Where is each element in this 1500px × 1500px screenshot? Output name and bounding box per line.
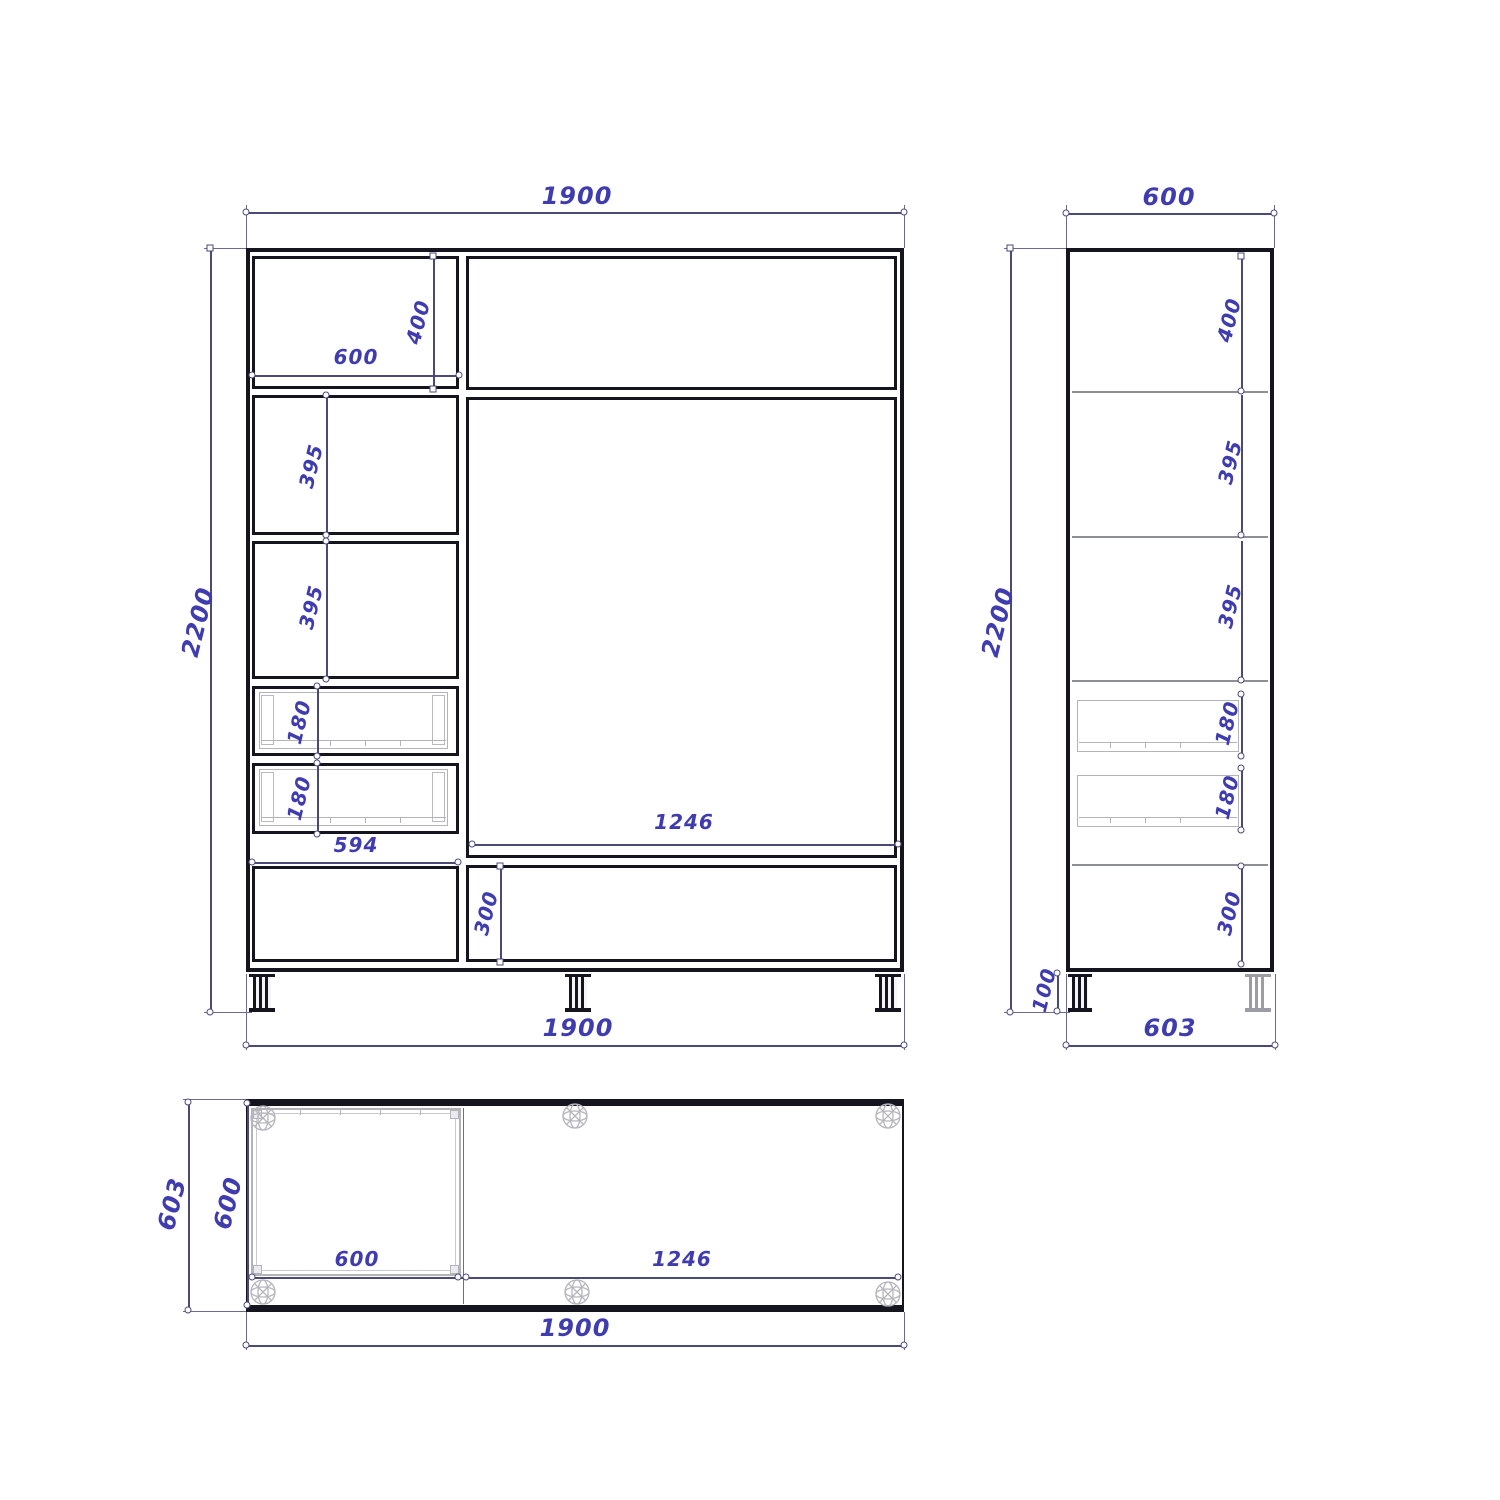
blueprint-canvas: 1900 2200 1900 600 400 395 395 180 180 5… [0,0,1500,1500]
leg-circle-icon [561,1102,589,1130]
dim-line [247,1103,249,1307]
dim-node [1238,388,1245,395]
dim-front-width-top-label: 1900 [542,182,613,210]
module-tick [300,1110,301,1115]
drawer-rail-tick [330,741,331,746]
dim-plan-right-width-label: 1246 [652,1247,712,1271]
module-tick [380,1110,381,1115]
dim-node [1007,1009,1014,1016]
dim-node [901,1342,908,1349]
dim-node [497,959,504,966]
dim-node [314,760,321,767]
dim-node [249,859,256,866]
dim-line [433,256,435,389]
extension-line [904,974,905,1050]
drawer-rail-tick [1145,818,1146,823]
dim-line [188,1102,190,1310]
dim-line [252,1277,898,1279]
drawer-rail-tick [365,818,366,823]
dim-front-top-cell-width-label: 600 [334,345,379,369]
dim-node [1272,1042,1279,1049]
front-leg-right [877,974,899,1012]
dim-line [246,1045,904,1047]
module-corner-detail [253,1265,262,1274]
extension-line [183,1099,246,1100]
dim-node [1238,765,1245,772]
dim-line [246,1345,904,1347]
front-leg-left [251,974,273,1012]
leg-circle-icon [874,1280,902,1308]
dim-node [314,831,321,838]
dim-node [244,1302,251,1309]
dim-node [1238,677,1245,684]
dim-line [1241,866,1243,964]
dim-side-height-label: 2200 [976,584,1020,659]
dim-node [1271,210,1278,217]
extension-line [183,1311,246,1312]
module-corner-detail [450,1110,459,1119]
dim-front-width-bottom-label: 1900 [543,1014,614,1042]
dim-node [243,209,250,216]
dim-node [1238,961,1245,968]
dim-front-height-label: 2200 [176,584,220,659]
dim-node [1063,210,1070,217]
extension-line [1275,974,1276,1050]
drawer-rail-tick [400,818,401,823]
dim-node [243,1042,250,1049]
drawer-rail-tick [330,818,331,823]
dim-front-drawer-width-label: 594 [334,833,379,857]
dim-front-right-width-label: 1246 [654,810,714,834]
dim-node [463,1274,470,1281]
dim-line [252,375,459,377]
dim-node [249,1274,256,1281]
dim-node [895,841,902,848]
side-leg-back [1247,974,1269,1012]
dim-line [1066,213,1274,215]
drawer-slide-detail [261,695,274,745]
front-shelf-cell-2 [252,541,459,679]
leg-circle-icon [249,1278,277,1306]
front-top-right-band [466,256,897,390]
extension-line [1066,974,1067,1050]
dim-node [314,683,321,690]
dim-line [500,866,502,962]
dim-node [430,253,437,260]
dim-node [455,1274,462,1281]
dim-node [207,1009,214,1016]
extension-line [246,974,247,1050]
drawer-rail-tick [1110,818,1111,823]
drawer-rail-tick [365,741,366,746]
dim-node [185,1099,192,1106]
dim-side-width-top-label: 600 [1142,183,1195,211]
leg-circle-icon [249,1104,277,1132]
dim-node [314,753,321,760]
front-shelf-cell-1 [252,395,459,535]
side-leg-front [1070,974,1090,1012]
dim-node [430,386,437,393]
dim-side-depth-bottom-label: 603 [1143,1014,1196,1042]
dim-node [1238,532,1245,539]
front-door-area [466,397,897,858]
dim-node [1238,863,1245,870]
dim-line [326,395,328,535]
dim-node [469,841,476,848]
dim-line [1241,256,1243,391]
dim-line [326,541,328,679]
module-tick [340,1110,341,1115]
dim-node [1238,253,1245,260]
front-bottom-drawer [466,865,897,962]
drawer-slide-detail [261,772,274,822]
dim-node [207,245,214,252]
front-leg-middle [567,974,589,1012]
dim-node [243,1342,250,1349]
dim-node [1238,753,1245,760]
dim-node [895,1274,902,1281]
dim-plan-depth-inner-label: 600 [208,1174,248,1232]
dim-node [244,1100,251,1107]
dim-node [497,863,504,870]
drawer-slide-detail [432,772,445,822]
dim-node [1054,1008,1061,1015]
dim-node [323,538,330,545]
dim-line [252,862,458,864]
leg-circle-icon [563,1278,591,1306]
dim-node [455,859,462,866]
module-tick [420,1110,421,1115]
dim-node [1238,827,1245,834]
dim-plan-width-bottom-label: 1900 [540,1314,611,1342]
drawer-rail-detail [1079,817,1237,818]
dim-plan-depth-outer-label: 603 [152,1175,192,1233]
dim-line [1066,1045,1275,1047]
dim-node [323,676,330,683]
dim-line [317,686,319,756]
drawer-rail-tick [1145,743,1146,748]
drawer-rail-tick [1110,743,1111,748]
dim-node [1238,691,1245,698]
drawer-rail-tick [400,741,401,746]
dim-node [1063,1042,1070,1049]
dim-line [246,212,904,214]
drawer-rail-tick [1180,818,1181,823]
dim-node [323,392,330,399]
dim-node [901,1042,908,1049]
dim-node [185,1307,192,1314]
dim-line [317,763,319,834]
dim-plan-module-width-label: 600 [335,1247,380,1271]
dim-node [456,372,463,379]
leg-circle-icon [874,1102,902,1130]
dim-line [472,844,898,846]
drawer-slide-detail [432,695,445,745]
drawer-rail-tick [1180,743,1181,748]
dim-node [1007,245,1014,252]
front-bottom-left-cell [252,866,459,962]
dim-node [249,372,256,379]
dim-node [901,209,908,216]
